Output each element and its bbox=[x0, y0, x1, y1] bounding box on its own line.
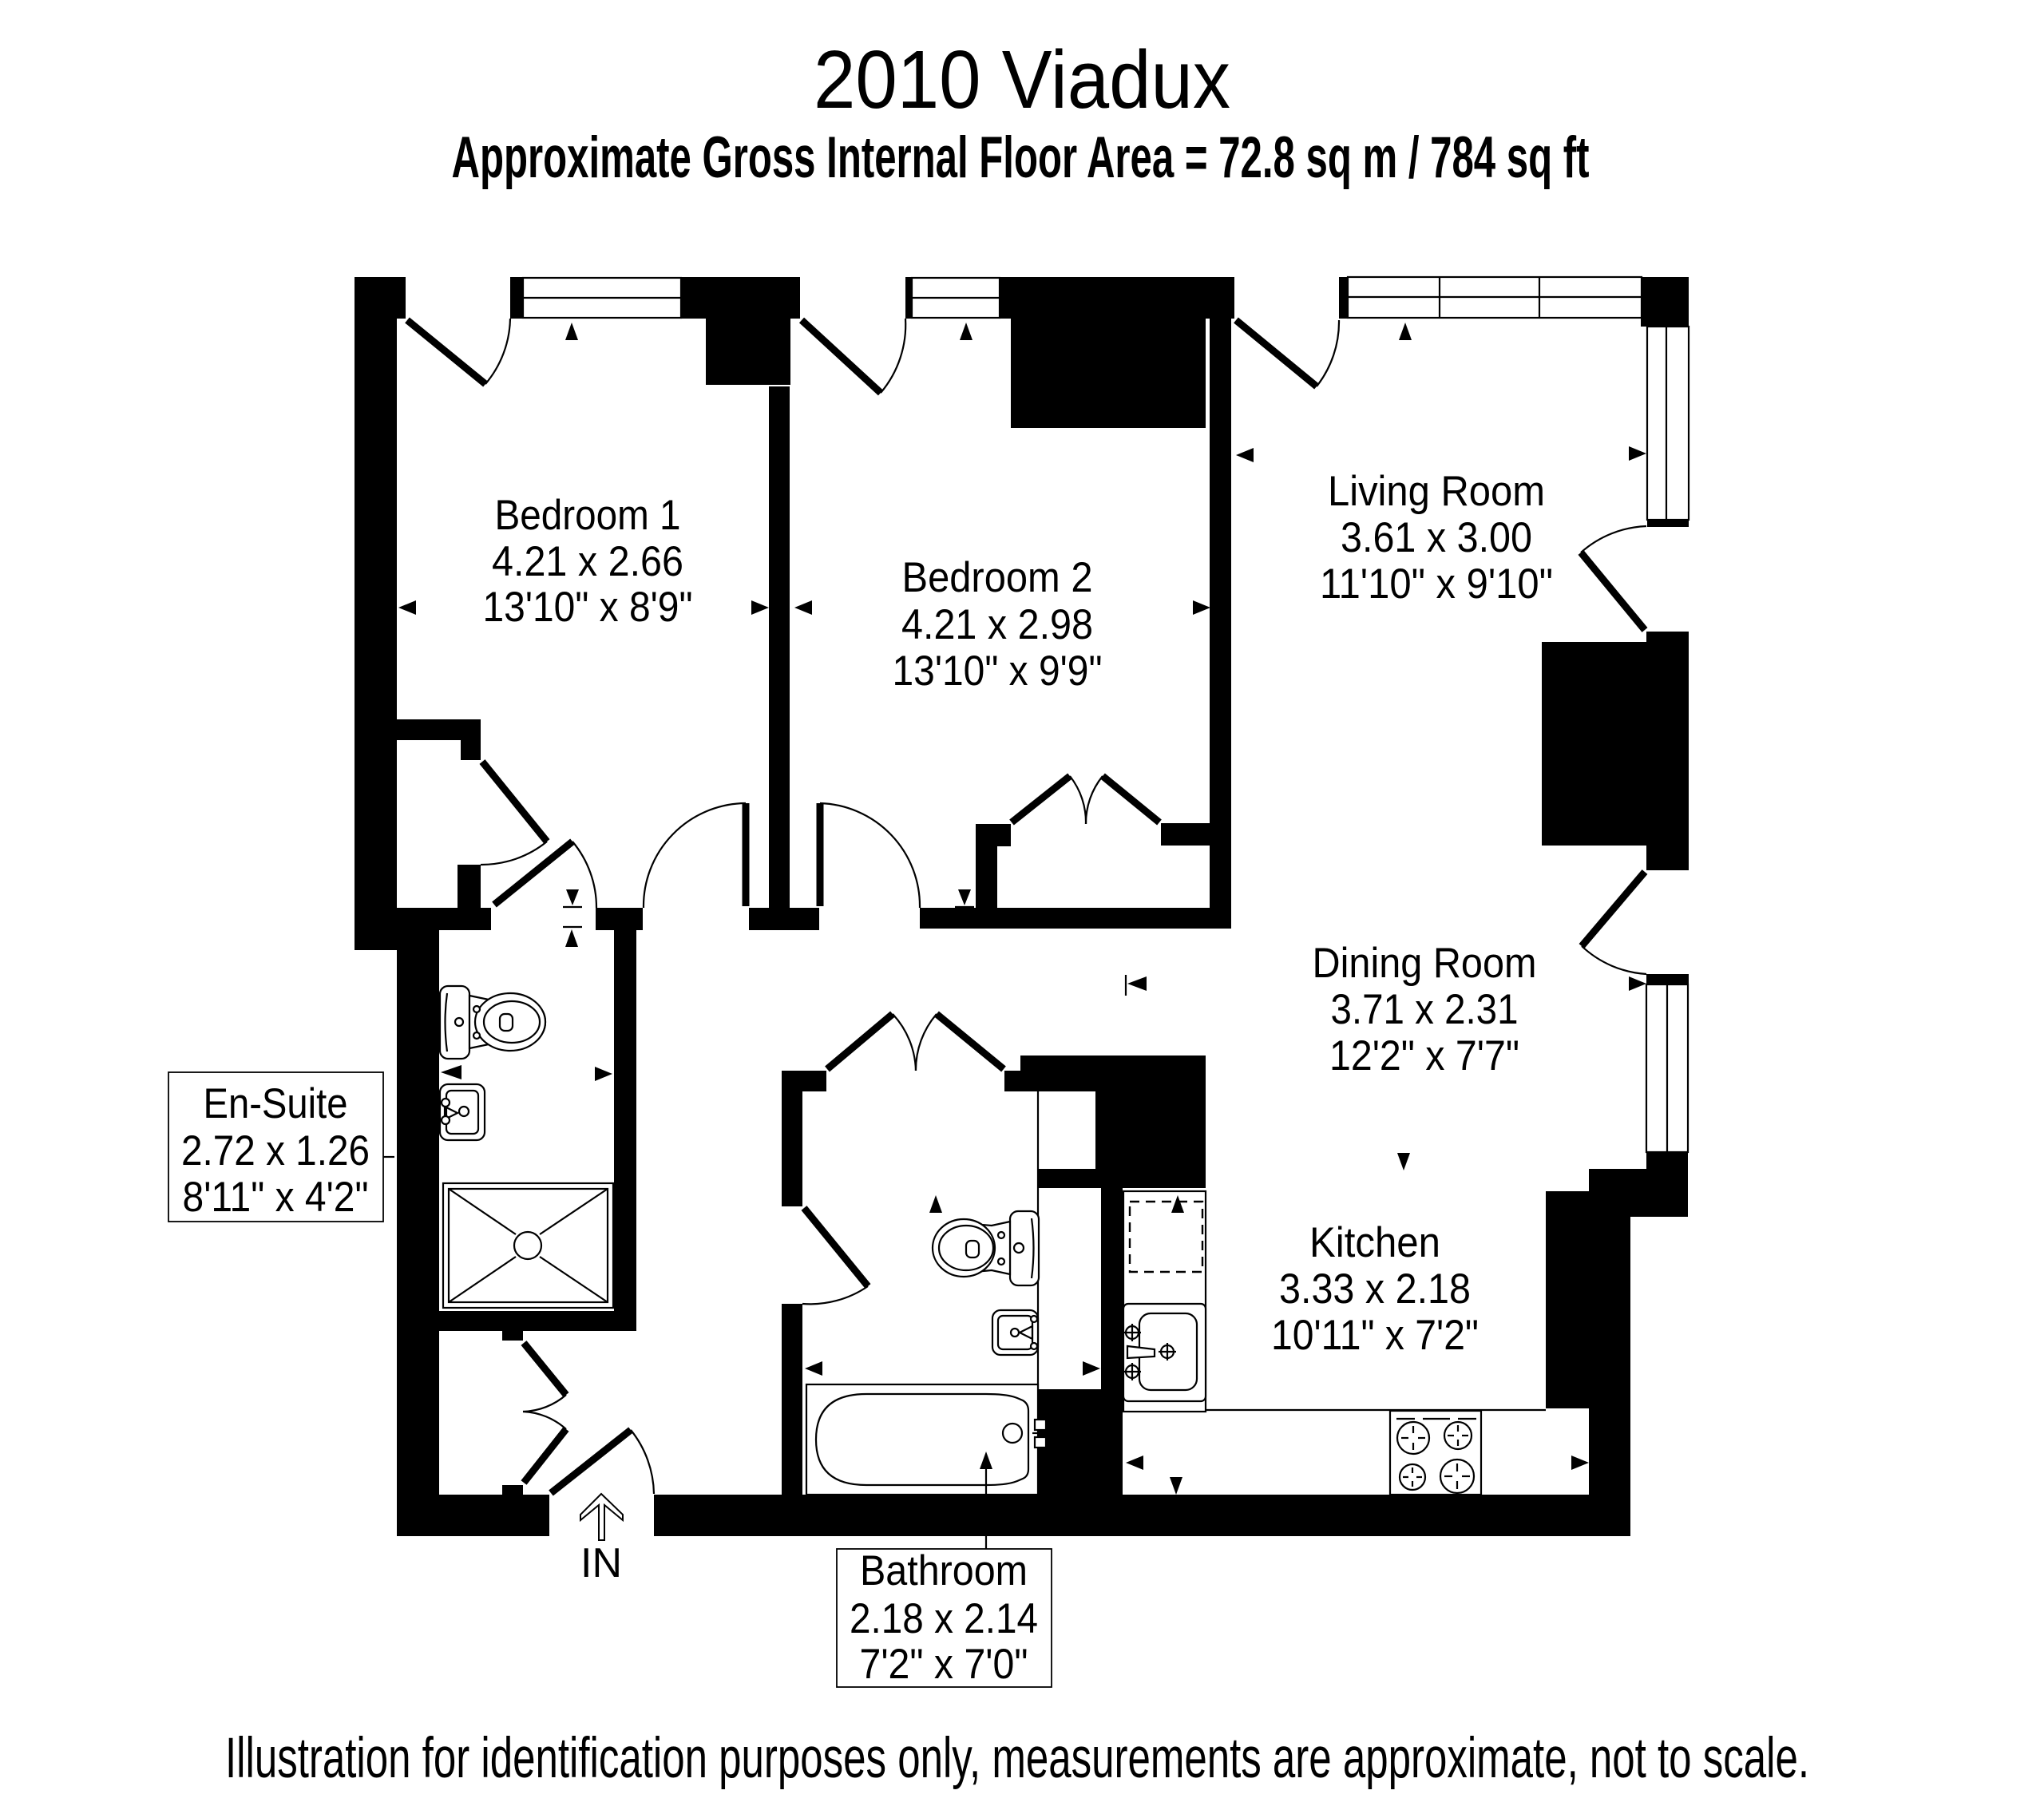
svg-text:Bathroom: Bathroom bbox=[860, 1547, 1028, 1594]
svg-text:3.71 x 2.31: 3.71 x 2.31 bbox=[1331, 986, 1519, 1033]
svg-text:Bedroom 1: Bedroom 1 bbox=[495, 492, 681, 539]
svg-text:7'2" x 7'0": 7'2" x 7'0" bbox=[860, 1641, 1028, 1688]
svg-text:2010 Viadux: 2010 Viadux bbox=[814, 34, 1230, 125]
svg-text:12'2" x 7'7": 12'2" x 7'7" bbox=[1329, 1032, 1519, 1079]
svg-text:10'11" x 7'2": 10'11" x 7'2" bbox=[1271, 1312, 1479, 1359]
svg-text:Bedroom 2: Bedroom 2 bbox=[902, 554, 1093, 601]
svg-text:8'11" x 4'2": 8'11" x 4'2" bbox=[183, 1174, 369, 1221]
svg-text:IN: IN bbox=[580, 1540, 622, 1586]
svg-text:Dining Room: Dining Room bbox=[1313, 940, 1537, 987]
svg-text:4.21 x 2.98: 4.21 x 2.98 bbox=[901, 601, 1093, 648]
svg-text:3.33 x 2.18: 3.33 x 2.18 bbox=[1279, 1265, 1471, 1313]
svg-text:Kitchen: Kitchen bbox=[1309, 1219, 1440, 1266]
svg-text:2.18 x 2.14: 2.18 x 2.14 bbox=[850, 1595, 1038, 1642]
svg-text:En-Suite: En-Suite bbox=[204, 1080, 348, 1127]
svg-text:13'10" x 8'9": 13'10" x 8'9" bbox=[483, 584, 693, 631]
svg-text:Illustration for identificatio: Illustration for identification purposes… bbox=[225, 1727, 1809, 1790]
svg-text:Living Room: Living Room bbox=[1328, 468, 1545, 515]
svg-text:4.21 x 2.66: 4.21 x 2.66 bbox=[492, 538, 683, 585]
svg-text:Approximate Gross Internal Flo: Approximate Gross Internal Floor Area = … bbox=[452, 125, 1590, 190]
svg-text:11'10" x 9'10": 11'10" x 9'10" bbox=[1320, 560, 1553, 608]
svg-text:2.72 x 1.26: 2.72 x 1.26 bbox=[181, 1127, 370, 1174]
svg-text:3.61 x 3.00: 3.61 x 3.00 bbox=[1341, 514, 1532, 561]
svg-text:13'10" x 9'9": 13'10" x 9'9" bbox=[893, 648, 1103, 695]
